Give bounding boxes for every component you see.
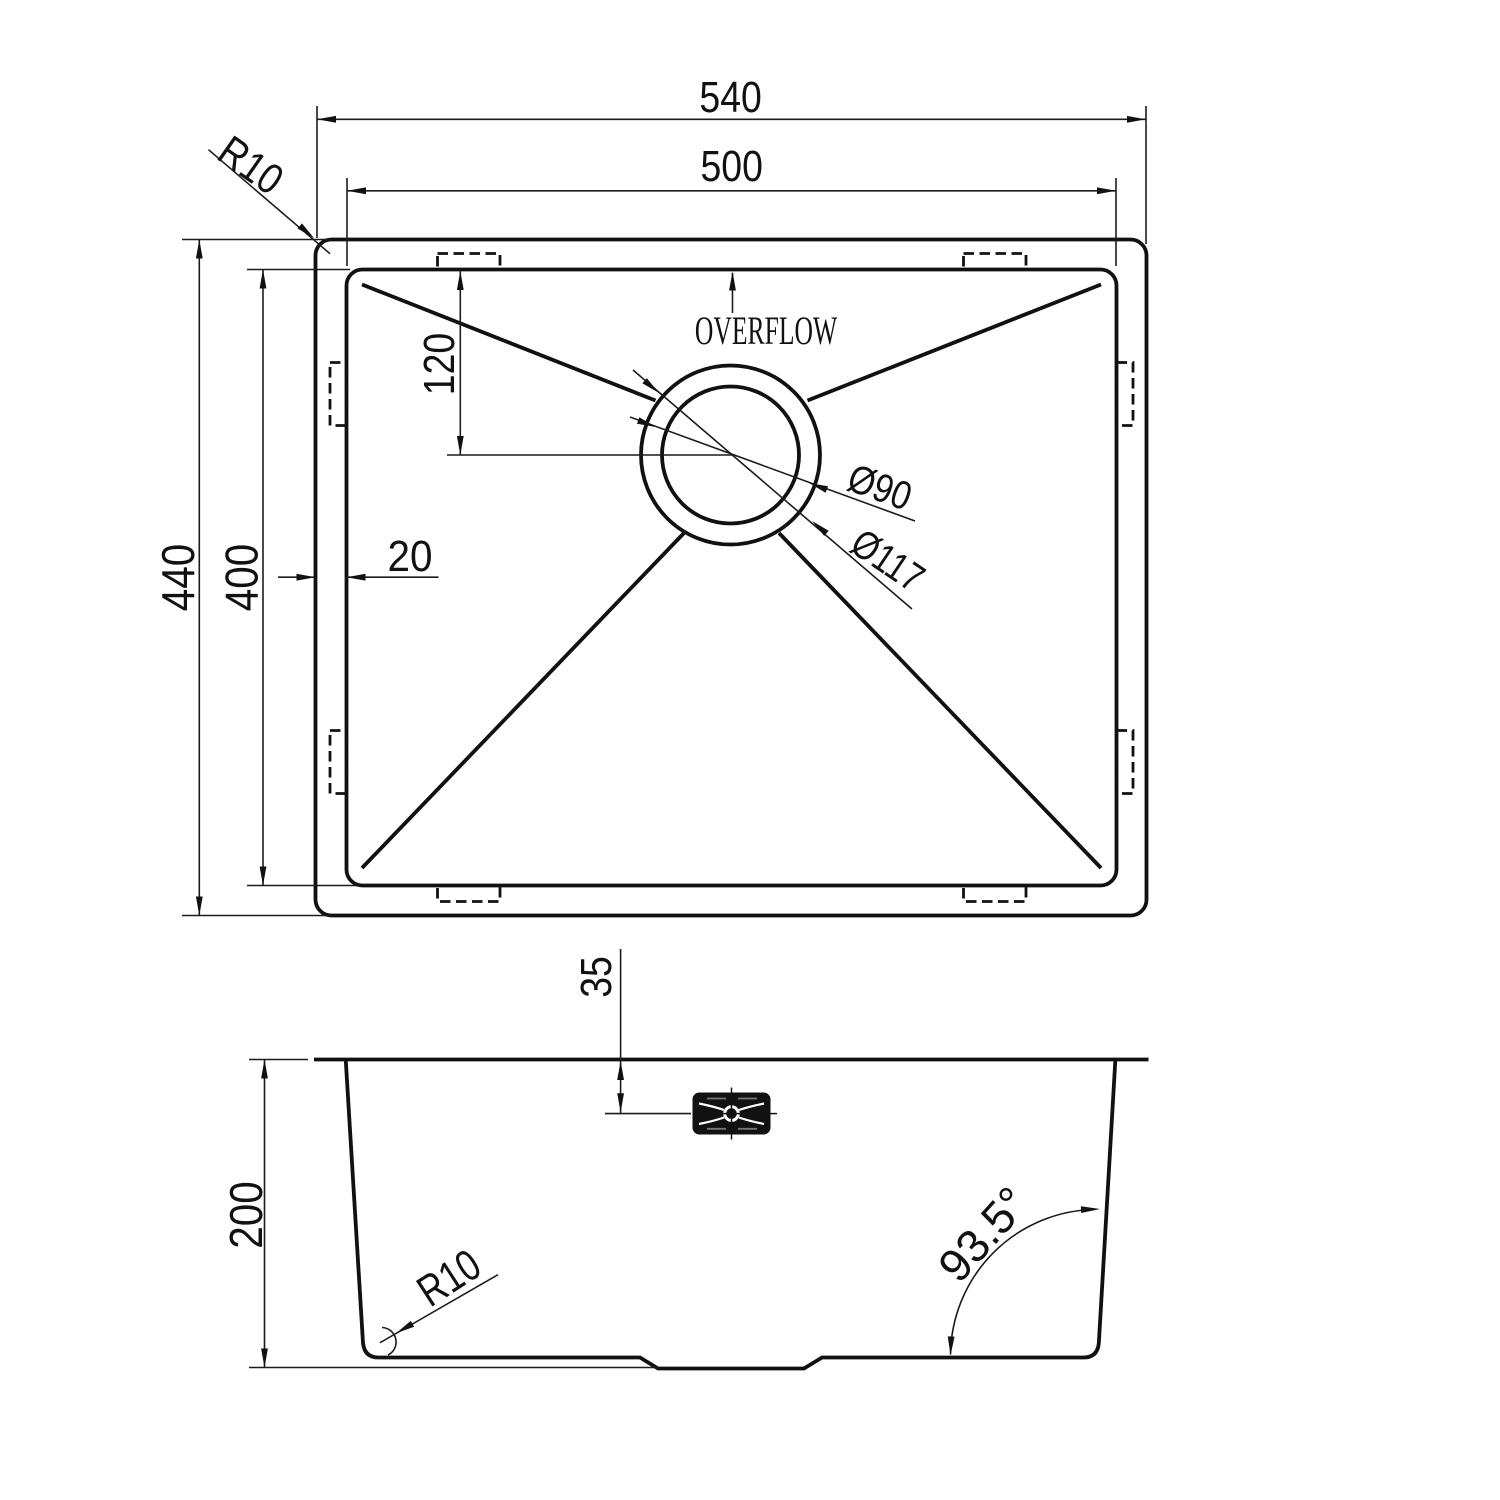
svg-text:400: 400	[217, 544, 268, 612]
svg-text:540: 540	[699, 72, 761, 122]
svg-text:120: 120	[414, 333, 464, 395]
svg-text:OVERFLOW: OVERFLOW	[695, 309, 837, 353]
svg-text:35: 35	[571, 956, 621, 998]
svg-text:500: 500	[701, 141, 763, 191]
svg-text:200: 200	[222, 1181, 273, 1249]
svg-text:20: 20	[387, 531, 432, 580]
svg-text:440: 440	[154, 544, 205, 612]
